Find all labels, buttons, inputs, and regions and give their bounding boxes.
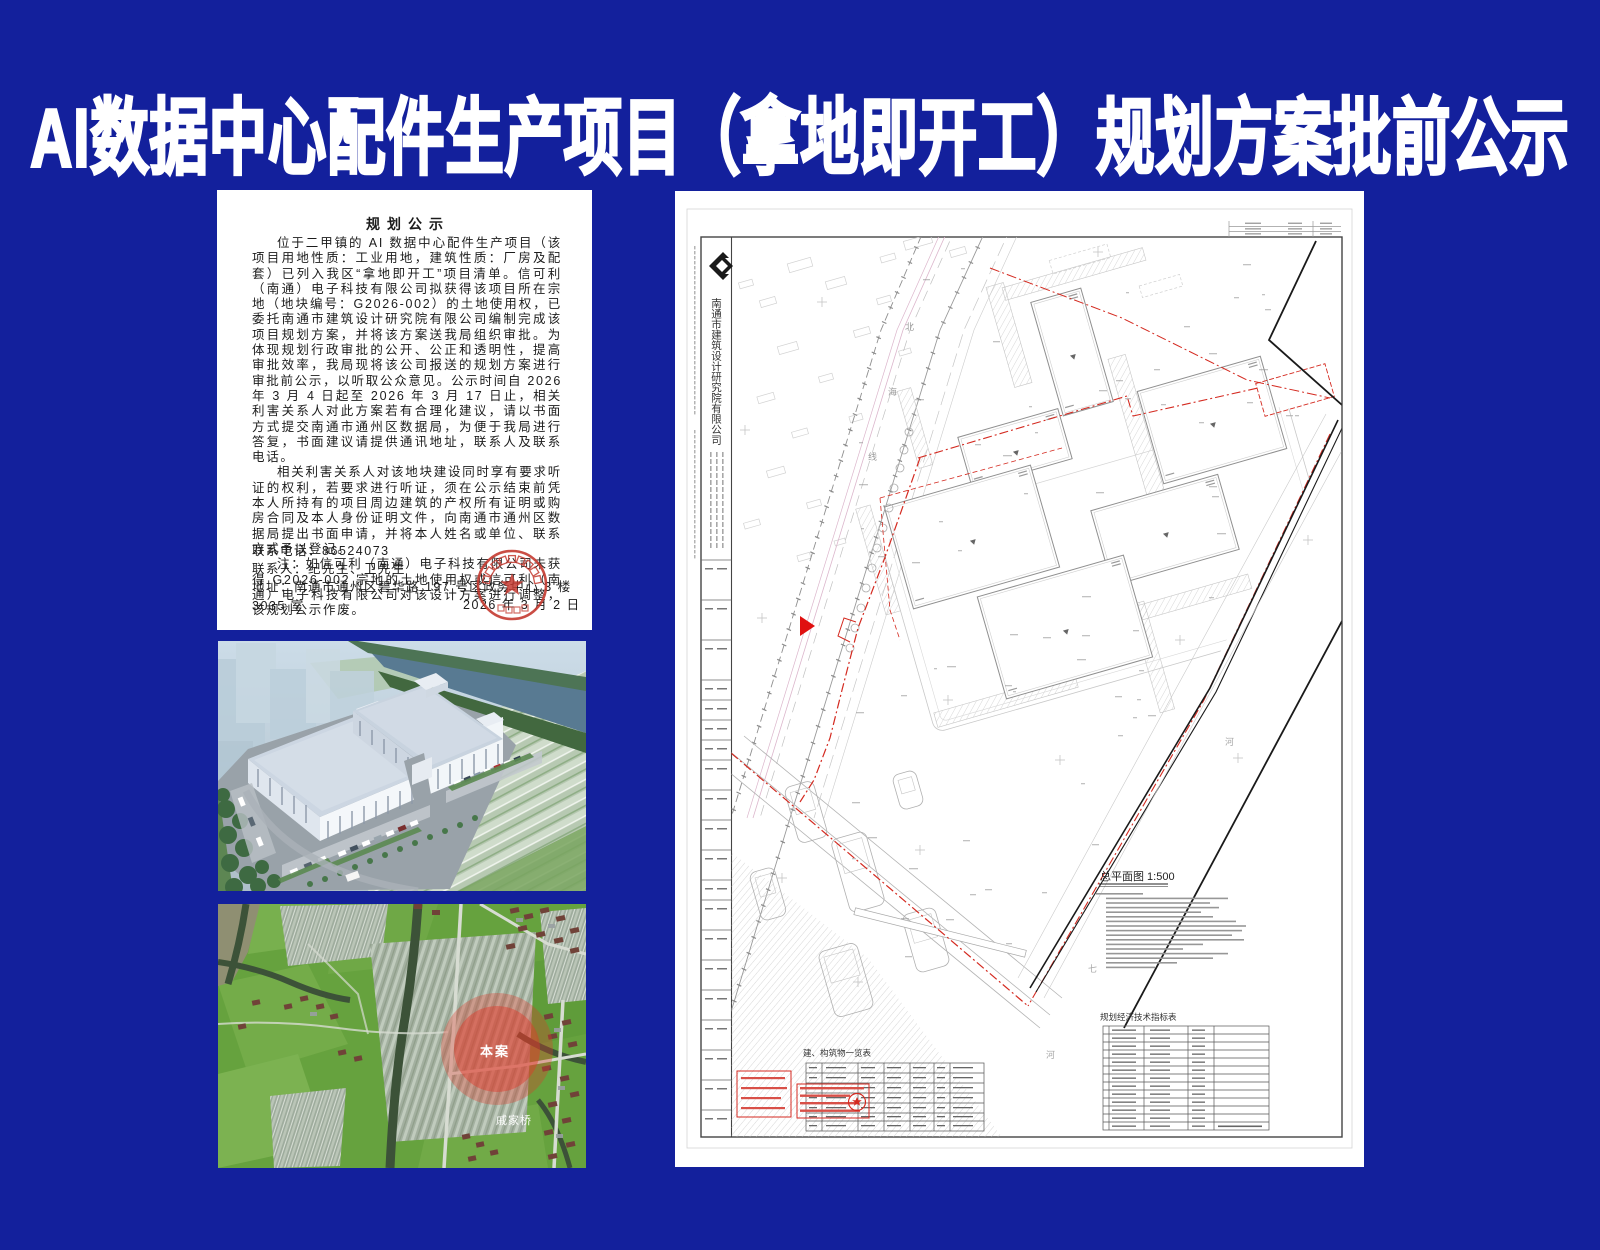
svg-text:本案: 本案 xyxy=(480,1044,510,1059)
svg-text:线: 线 xyxy=(868,451,877,462)
svg-text:北: 北 xyxy=(905,322,914,332)
svg-text:七: 七 xyxy=(1088,964,1097,974)
svg-text:总平面图 1:500: 总平面图 1:500 xyxy=(1100,869,1175,883)
svg-text:戚家桥: 戚家桥 xyxy=(496,1113,532,1127)
svg-text:河: 河 xyxy=(1225,736,1234,747)
svg-text:规划经济技术指标表: 规划经济技术指标表 xyxy=(1100,1012,1177,1022)
svg-text:河: 河 xyxy=(1046,1049,1055,1060)
svg-text:南通市建筑设计研究院有限公司: 南通市建筑设计研究院有限公司 xyxy=(710,297,722,445)
svg-text:建、构筑物一览表: 建、构筑物一览表 xyxy=(803,1048,872,1058)
svg-text:海: 海 xyxy=(888,386,897,397)
